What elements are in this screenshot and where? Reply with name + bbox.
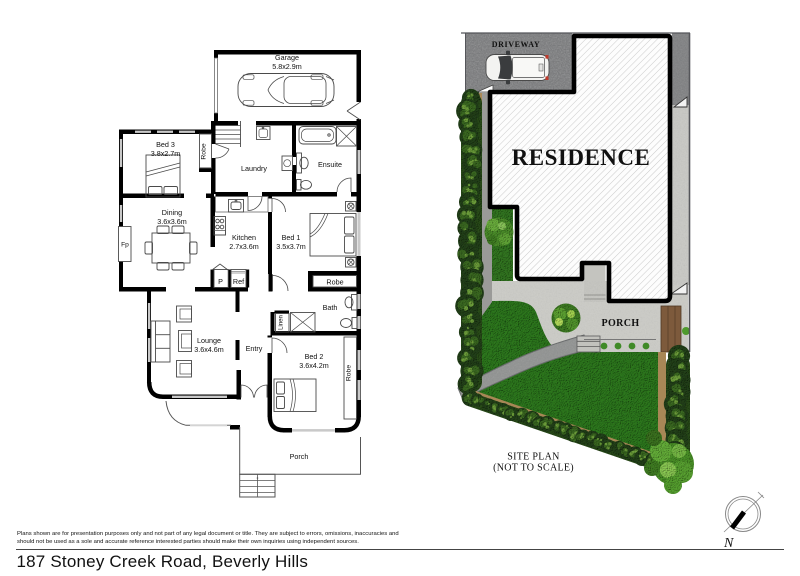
svg-text:3.8x2.7m: 3.8x2.7m — [151, 149, 181, 158]
svg-text:Bed 1: Bed 1 — [282, 233, 301, 242]
svg-text:(NOT TO SCALE): (NOT TO SCALE) — [493, 463, 574, 474]
svg-text:3.6x4.2m: 3.6x4.2m — [299, 361, 329, 370]
svg-text:Porch: Porch — [290, 452, 309, 461]
svg-text:Robe: Robe — [201, 143, 208, 159]
svg-text:Bed 3: Bed 3 — [156, 140, 175, 149]
svg-text:PORCH: PORCH — [601, 318, 639, 329]
svg-text:Bath: Bath — [323, 303, 338, 312]
svg-text:Entry: Entry — [246, 344, 263, 353]
svg-text:3.6x3.6m: 3.6x3.6m — [157, 217, 187, 226]
svg-text:Linen: Linen — [278, 315, 284, 330]
svg-text:Ref: Ref — [233, 277, 244, 286]
svg-text:5.8x2.9m: 5.8x2.9m — [272, 62, 302, 71]
svg-text:Lounge: Lounge — [197, 336, 221, 345]
svg-text:P: P — [218, 277, 223, 286]
svg-text:187 Stoney Creek Road, Beverly: 187 Stoney Creek Road, Beverly Hills — [17, 552, 309, 571]
svg-text:Kitchen: Kitchen — [232, 233, 256, 242]
svg-text:Robe: Robe — [326, 278, 343, 287]
svg-text:SITE PLAN: SITE PLAN — [507, 452, 559, 463]
svg-text:Plans shown are for presentati: Plans shown are for presentation purpose… — [17, 531, 399, 537]
svg-text:Laundry: Laundry — [241, 164, 267, 173]
svg-text:Fp: Fp — [121, 242, 129, 249]
svg-text:DRIVEWAY: DRIVEWAY — [492, 40, 541, 49]
svg-text:should not be used as a sole a: should not be used as a sole and accurat… — [17, 539, 359, 545]
svg-text:2.7x3.6m: 2.7x3.6m — [229, 242, 259, 251]
svg-text:RESIDENCE: RESIDENCE — [512, 145, 651, 170]
svg-text:Garage: Garage — [275, 53, 299, 62]
svg-text:Bed 2: Bed 2 — [305, 352, 324, 361]
svg-text:N: N — [723, 536, 734, 551]
svg-text:3.5x3.7m: 3.5x3.7m — [276, 242, 306, 251]
svg-text:3.6x4.6m: 3.6x4.6m — [194, 345, 224, 354]
svg-text:Robe: Robe — [346, 365, 353, 381]
svg-text:Ensuite: Ensuite — [318, 160, 342, 169]
svg-text:Dining: Dining — [162, 208, 182, 217]
